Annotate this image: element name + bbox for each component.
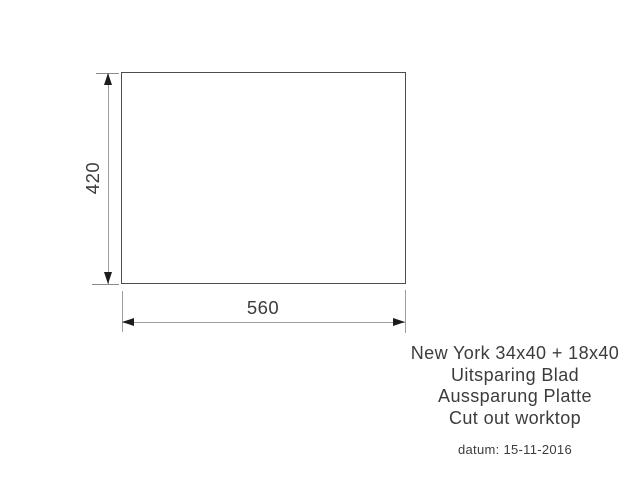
product-caption: New York 34x40 + 18x40 Uitsparing Blad A… bbox=[403, 343, 627, 429]
arrow-left-icon bbox=[122, 318, 134, 326]
product-title: New York 34x40 + 18x40 bbox=[403, 343, 627, 365]
cutout-rectangle bbox=[121, 72, 406, 284]
arrow-down-icon bbox=[104, 272, 112, 284]
caption-line-dutch: Uitsparing Blad bbox=[403, 365, 627, 387]
height-extension-tick-bottom bbox=[92, 284, 119, 285]
arrow-up-icon bbox=[104, 73, 112, 85]
width-dimension-line bbox=[122, 322, 405, 323]
height-dimension-line bbox=[108, 73, 109, 284]
height-dimension-label: 420 bbox=[82, 162, 104, 194]
arrow-right-icon bbox=[393, 318, 405, 326]
width-extension-line-left bbox=[122, 291, 123, 332]
technical-drawing-canvas: 420 560 New York 34x40 + 18x40 Uitsparin… bbox=[0, 0, 636, 493]
width-extension-line-right bbox=[405, 290, 406, 333]
width-dimension-label: 560 bbox=[247, 297, 279, 319]
date-label: datum: 15-11-2016 bbox=[458, 442, 572, 457]
caption-line-english: Cut out worktop bbox=[403, 408, 627, 430]
caption-line-german: Aussparung Platte bbox=[403, 386, 627, 408]
